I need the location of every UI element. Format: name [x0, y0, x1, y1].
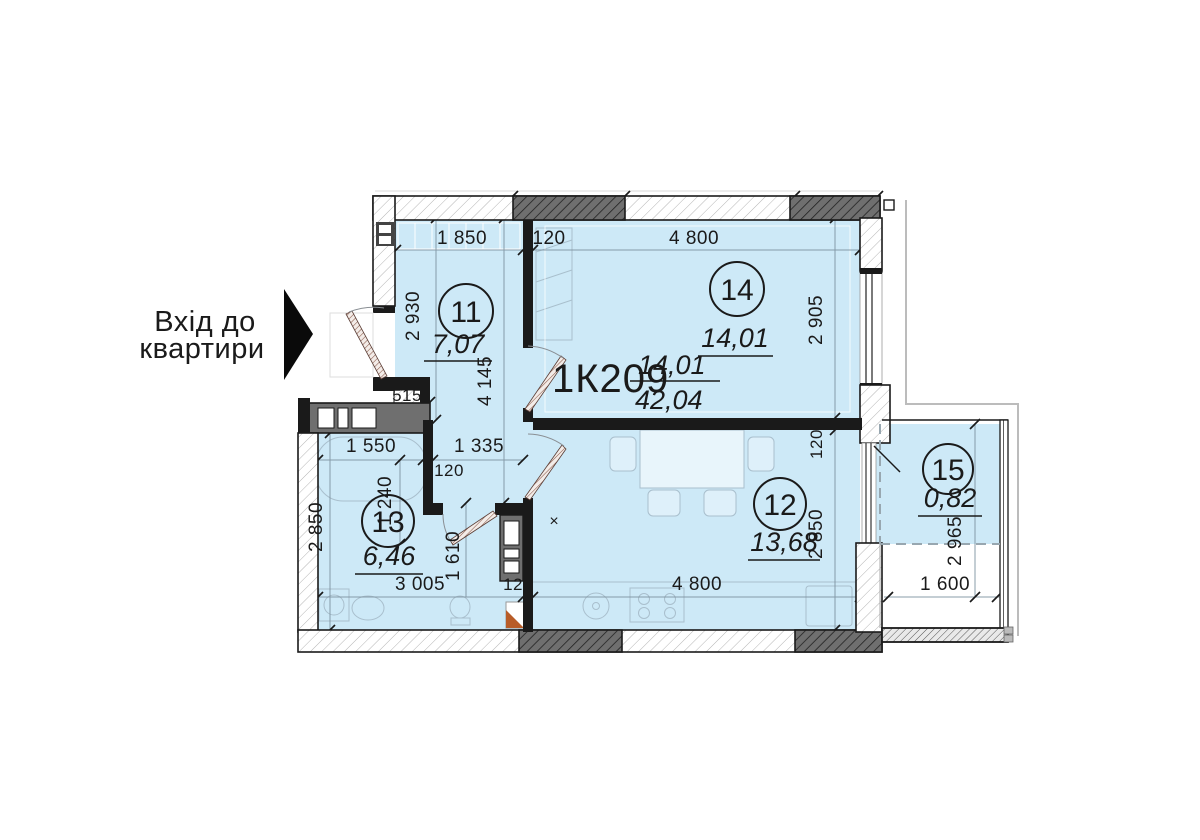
unit-area-numerator: 14,01: [638, 350, 706, 380]
unit-area-denominator: 42,04: [635, 385, 703, 415]
wall-top-block-1: [513, 196, 625, 220]
dim-balcony-1600: 1 600: [920, 574, 970, 595]
dim-right-2850: 2 850: [806, 509, 827, 559]
floor-plan-canvas: Вхід до квартири 1К209 14,01 42,04 11 7,…: [0, 0, 1200, 840]
dim-jog-515: 515: [392, 386, 422, 405]
entrance-door: [330, 307, 387, 379]
dim-top-4800: 4 800: [669, 228, 719, 249]
entrance-arrow-icon: [284, 289, 313, 380]
chair: [748, 437, 774, 471]
chair: [648, 490, 680, 516]
dim-mid-1550: 1 550: [346, 436, 396, 457]
vent-x-marker: ×: [549, 513, 558, 530]
chair: [610, 437, 636, 471]
balcony-rail: [882, 628, 1008, 642]
balcony-door-unit: [862, 443, 876, 543]
wall-bottom-block-1: [519, 630, 622, 652]
dim-mid-120: 120: [434, 461, 464, 480]
dim-mid-1240: 1 240: [375, 476, 396, 526]
dim-left-2930: 2 930: [403, 291, 424, 341]
room13-area: 6,46: [363, 541, 417, 571]
dim-balcony-2965: 2 965: [945, 516, 966, 566]
dining-table: [640, 430, 744, 488]
dim-bottom-4800: 4 800: [672, 574, 722, 595]
floor-plan-drawing: Вхід до квартири 1К209 14,01 42,04 11 7,…: [0, 0, 1200, 840]
dim-right-2905: 2 905: [806, 295, 827, 345]
room11-number: 11: [450, 296, 481, 329]
wall-bottom-block-2: [795, 630, 882, 652]
wall-corridor-left: [423, 420, 433, 505]
room14-number: 14: [720, 274, 753, 307]
wall-right-pier-2: [860, 385, 890, 443]
wall-top-block-2: [790, 196, 880, 220]
dim-top-1850: 1 850: [437, 228, 487, 249]
dim-left-4145: 4 145: [475, 356, 496, 406]
room14-area: 14,01: [701, 323, 769, 353]
balcony-wall-right: [1000, 420, 1008, 632]
wall-12-left: [523, 498, 533, 632]
exterior-marker: [884, 200, 894, 210]
dim-bottom-1610: 1 610: [443, 531, 464, 581]
wall-right-pier-1: [860, 218, 882, 272]
wall-14-12: [533, 418, 862, 430]
wall-right-lower: [856, 543, 882, 632]
dim-top-120: 120: [532, 228, 565, 249]
room12-number: 12: [763, 489, 796, 522]
dim-bottom-120: 120: [503, 575, 533, 594]
entrance-label-line2: квартири: [139, 333, 264, 365]
dim-right-120: 120: [807, 429, 826, 459]
wall-left-upper: [373, 196, 395, 306]
dim-bath-2850: 2 850: [306, 502, 327, 552]
room15-area: 0,82: [924, 483, 977, 513]
room11-area: 7,07: [432, 329, 486, 359]
dim-mid-1335: 1 335: [454, 436, 504, 457]
dim-bottom-3005: 3 005: [395, 574, 445, 595]
service-box: [506, 602, 524, 628]
window-room14: [860, 272, 882, 385]
chair: [704, 490, 736, 516]
